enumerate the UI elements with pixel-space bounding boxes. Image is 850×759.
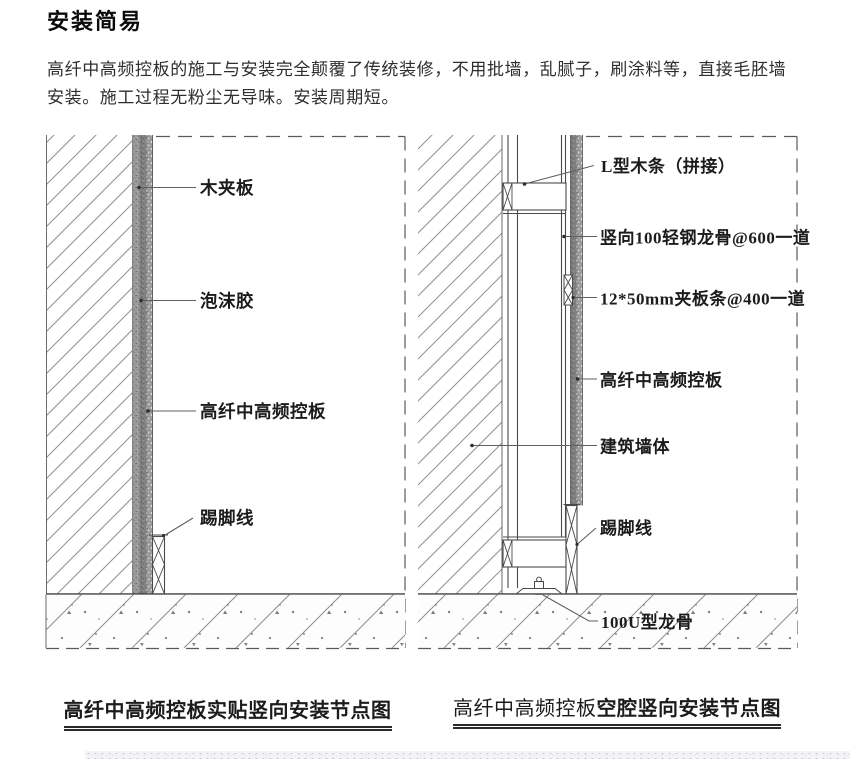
label-l-wood-strip: L型木条（拼接） <box>601 156 735 176</box>
label-skirting-right: 踢脚线 <box>600 518 653 538</box>
right-skirting-box <box>566 506 577 595</box>
left-layer-stack <box>133 135 153 594</box>
intro-line-2: 安装。施工过程无粉尘无导味。安装周期短。 <box>47 84 837 112</box>
label-u-channel-keel: 100U型龙骨 <box>601 612 693 632</box>
bolt-head <box>535 582 544 589</box>
clamp-strip-block <box>564 275 573 305</box>
left-installation-diagram: 木夹板 泡沫胶 高纤中高频控板 踢脚线 <box>40 130 410 660</box>
plywood-layer <box>133 135 140 594</box>
bottom-l-wood-strip <box>503 537 566 567</box>
page-title: 安装简易 <box>47 4 143 36</box>
top-l-wood-strip <box>503 183 566 214</box>
left-wall-hatch <box>46 135 133 594</box>
right-diagram-caption: 高纤中高频控板空腔竖向安装节点图 <box>453 692 781 729</box>
panel-layer <box>147 135 153 594</box>
left-floor <box>46 594 405 649</box>
label-vertical-keel: 竖向100轻钢龙骨@600一道 <box>600 228 810 248</box>
label-plywood-strip: 12*50mm夹板条@400一道 <box>600 289 805 309</box>
label-panel-left: 高纤中高频控板 <box>200 402 326 422</box>
next-section-texture-strip <box>85 751 850 759</box>
label-plywood: 木夹板 <box>199 178 254 198</box>
label-building-wall: 建筑墙体 <box>600 437 670 457</box>
right-wall-section <box>418 135 502 594</box>
u-channel-runner <box>516 589 562 595</box>
clamp-strip-box <box>564 275 573 305</box>
panel-front-layer <box>577 135 583 506</box>
panel-back-layer <box>571 135 577 506</box>
right-skirting <box>564 505 581 595</box>
intro-paragraph: 高纤中高频控板的施工与安装完全颠覆了传统装修，不用批墙，乱腻子，刷涂料等，直接毛… <box>47 56 837 111</box>
label-skirting-left: 踢脚线 <box>200 508 254 528</box>
skirting-box <box>153 537 165 595</box>
label-panel-right: 高纤中高频控板 <box>600 370 723 390</box>
right-diagram-caption-area: 高纤中高频控板空腔竖向安装节点图 <box>428 692 806 729</box>
floor-concrete-hatch <box>46 595 405 648</box>
right-caption-prefix: 高纤中高频控板 <box>453 698 597 720</box>
right-caption-suffix: 空腔竖向安装节点图 <box>597 698 782 720</box>
foam-glue-layer <box>140 135 147 594</box>
right-panel-stack <box>571 135 583 506</box>
left-diagram-caption-area: 高纤中高频控板实贴竖向安装节点图 <box>40 694 415 731</box>
right-wall-hatch <box>418 135 502 594</box>
left-diagram-caption: 高纤中高频控板实贴竖向安装节点图 <box>64 694 392 731</box>
right-installation-diagram: L型木条（拼接） 竖向100轻钢龙骨@600一道 12*50mm夹板条@400一… <box>405 130 820 660</box>
intro-line-1: 高纤中高频控板的施工与安装完全颠覆了传统装修，不用批墙，乱腻子，刷涂料等，直接毛… <box>47 56 837 84</box>
left-wall-section <box>46 135 133 594</box>
label-foam-glue: 泡沫胶 <box>200 291 254 311</box>
runner-plate <box>516 589 562 595</box>
